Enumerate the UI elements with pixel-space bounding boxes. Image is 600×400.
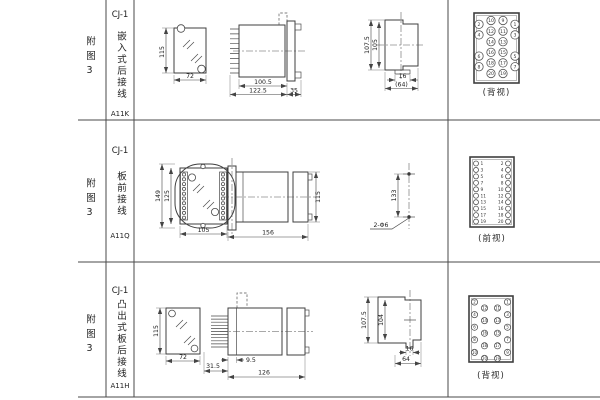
row1-front-view: 115 72 bbox=[159, 25, 206, 84]
svg-text:15: 15 bbox=[481, 206, 487, 212]
svg-text:2: 2 bbox=[473, 299, 476, 304]
svg-text:17: 17 bbox=[495, 343, 501, 348]
svg-text:15: 15 bbox=[500, 50, 506, 56]
row1-view-caption: (背视) bbox=[483, 87, 511, 98]
svg-text:6: 6 bbox=[478, 54, 481, 60]
svg-text:8: 8 bbox=[473, 337, 476, 342]
dim-side-len2: 122.5 bbox=[249, 88, 267, 95]
dim-cutout-w1: 16 bbox=[406, 346, 414, 353]
svg-text:4: 4 bbox=[478, 33, 481, 39]
svg-text:12: 12 bbox=[488, 29, 494, 35]
svg-text:3: 3 bbox=[514, 33, 517, 39]
svg-text:7: 7 bbox=[514, 64, 517, 70]
svg-text:11: 11 bbox=[495, 305, 501, 310]
row3-terminal-view: 2468101214161820111315171913579 (背视) bbox=[469, 296, 513, 381]
dim-side-h: 115 bbox=[315, 191, 322, 203]
svg-text:17: 17 bbox=[481, 213, 487, 219]
dim-side-len: 156 bbox=[262, 230, 274, 237]
svg-text:2: 2 bbox=[478, 22, 481, 28]
dim-front-height: 115 bbox=[153, 325, 160, 337]
svg-text:1: 1 bbox=[514, 22, 517, 28]
svg-text:6: 6 bbox=[473, 325, 476, 330]
dim-cutout-w1: 16 bbox=[399, 73, 407, 80]
svg-text:1: 1 bbox=[506, 299, 509, 304]
svg-text:16: 16 bbox=[482, 331, 488, 336]
svg-text:8: 8 bbox=[501, 180, 504, 186]
row1-cutout-view: 107.5 105 16 (64) bbox=[364, 12, 425, 91]
svg-text:12: 12 bbox=[498, 193, 504, 199]
row2-front-view: 149 125 105 bbox=[155, 164, 235, 238]
svg-text:14: 14 bbox=[488, 39, 494, 45]
svg-text:10: 10 bbox=[498, 187, 504, 193]
svg-text:11: 11 bbox=[500, 29, 506, 35]
svg-text:20: 20 bbox=[482, 356, 488, 361]
cj1-relay-dimension-sheet: 附图3 附图3 附图3 CJ-1 嵌入式后接线 A11K CJ-1 板前接线 A… bbox=[0, 0, 600, 400]
row2-view-caption: (前视) bbox=[478, 233, 506, 244]
svg-text:9: 9 bbox=[506, 350, 509, 355]
svg-text:13: 13 bbox=[481, 200, 487, 206]
svg-text:17: 17 bbox=[500, 61, 506, 67]
row2-side-view: 156 115 bbox=[222, 158, 322, 241]
dim-front-h2: 125 bbox=[164, 190, 171, 202]
svg-text:11: 11 bbox=[481, 193, 487, 199]
svg-text:10: 10 bbox=[472, 350, 478, 355]
svg-text:5: 5 bbox=[514, 54, 517, 60]
svg-text:14: 14 bbox=[482, 318, 488, 323]
row1-terminal-view: 2109141211314136161558181772019 (背视) bbox=[474, 13, 519, 98]
svg-text:19: 19 bbox=[481, 219, 487, 225]
dim-cutout-w2: 64 bbox=[402, 356, 410, 363]
svg-text:3: 3 bbox=[481, 167, 484, 173]
svg-text:19: 19 bbox=[495, 356, 501, 361]
dim-side-len1: 100.5 bbox=[254, 79, 272, 86]
svg-text:18: 18 bbox=[488, 61, 494, 67]
svg-text:10: 10 bbox=[488, 18, 494, 24]
svg-text:3: 3 bbox=[506, 312, 509, 317]
dim-side-offset: 9.5 bbox=[246, 357, 256, 364]
svg-text:2: 2 bbox=[501, 161, 504, 167]
dimension-drawings: 115 72 100.5 122.5 35 bbox=[0, 0, 600, 400]
dim-front-width: 72 bbox=[186, 73, 194, 80]
svg-text:5: 5 bbox=[506, 325, 509, 330]
dim-cutout-h2: 105 bbox=[372, 39, 379, 51]
dim-cutout-w2: (64) bbox=[395, 82, 408, 89]
svg-text:14: 14 bbox=[498, 200, 504, 206]
svg-text:18: 18 bbox=[498, 213, 504, 219]
dim-pin-len: 31.5 bbox=[206, 363, 220, 370]
svg-text:5: 5 bbox=[481, 174, 484, 180]
dim-side-len: 126 bbox=[258, 370, 270, 377]
svg-text:20: 20 bbox=[488, 71, 494, 77]
svg-text:20: 20 bbox=[498, 219, 504, 225]
svg-text:6: 6 bbox=[501, 174, 504, 180]
row3-cutout-view: 107.5 104 16 64 bbox=[361, 290, 421, 367]
row2-mounting-holes: 133 2-Φ6 bbox=[370, 163, 415, 229]
dim-front-height: 115 bbox=[159, 46, 166, 58]
dim-side-flange: 35 bbox=[290, 88, 298, 95]
svg-text:16: 16 bbox=[488, 50, 494, 56]
row3-front-view: 115 72 bbox=[153, 308, 200, 365]
svg-text:9: 9 bbox=[502, 18, 505, 24]
dim-hole-label: 2-Φ6 bbox=[374, 222, 389, 229]
row1-side-view: 100.5 122.5 35 bbox=[230, 13, 306, 97]
row2-terminal-view: 1357911131517192468101214161820 (前视) bbox=[470, 157, 514, 244]
svg-text:13: 13 bbox=[500, 39, 506, 45]
svg-text:7: 7 bbox=[506, 337, 509, 342]
svg-text:4: 4 bbox=[501, 167, 504, 173]
dim-front-width: 72 bbox=[179, 354, 187, 361]
row3-side-view: 31.5 9.5 126 bbox=[204, 293, 313, 380]
svg-text:19: 19 bbox=[500, 71, 506, 77]
svg-text:18: 18 bbox=[482, 343, 488, 348]
dim-cutout-h1: 107.5 bbox=[361, 311, 368, 329]
svg-text:16: 16 bbox=[498, 206, 504, 212]
dim-front-w: 105 bbox=[198, 227, 210, 234]
svg-text:7: 7 bbox=[481, 180, 484, 186]
svg-text:15: 15 bbox=[495, 331, 501, 336]
dim-front-h1: 149 bbox=[155, 190, 162, 202]
dim-hole-span: 133 bbox=[391, 190, 398, 202]
svg-text:12: 12 bbox=[482, 305, 488, 310]
svg-text:1: 1 bbox=[481, 161, 484, 167]
row3-view-caption: (背视) bbox=[477, 370, 505, 381]
svg-text:8: 8 bbox=[478, 64, 481, 70]
svg-text:13: 13 bbox=[495, 318, 501, 323]
dim-cutout-h1: 107.5 bbox=[364, 36, 371, 54]
dim-cutout-h2: 104 bbox=[378, 314, 385, 326]
svg-text:4: 4 bbox=[473, 312, 476, 317]
svg-text:9: 9 bbox=[481, 187, 484, 193]
